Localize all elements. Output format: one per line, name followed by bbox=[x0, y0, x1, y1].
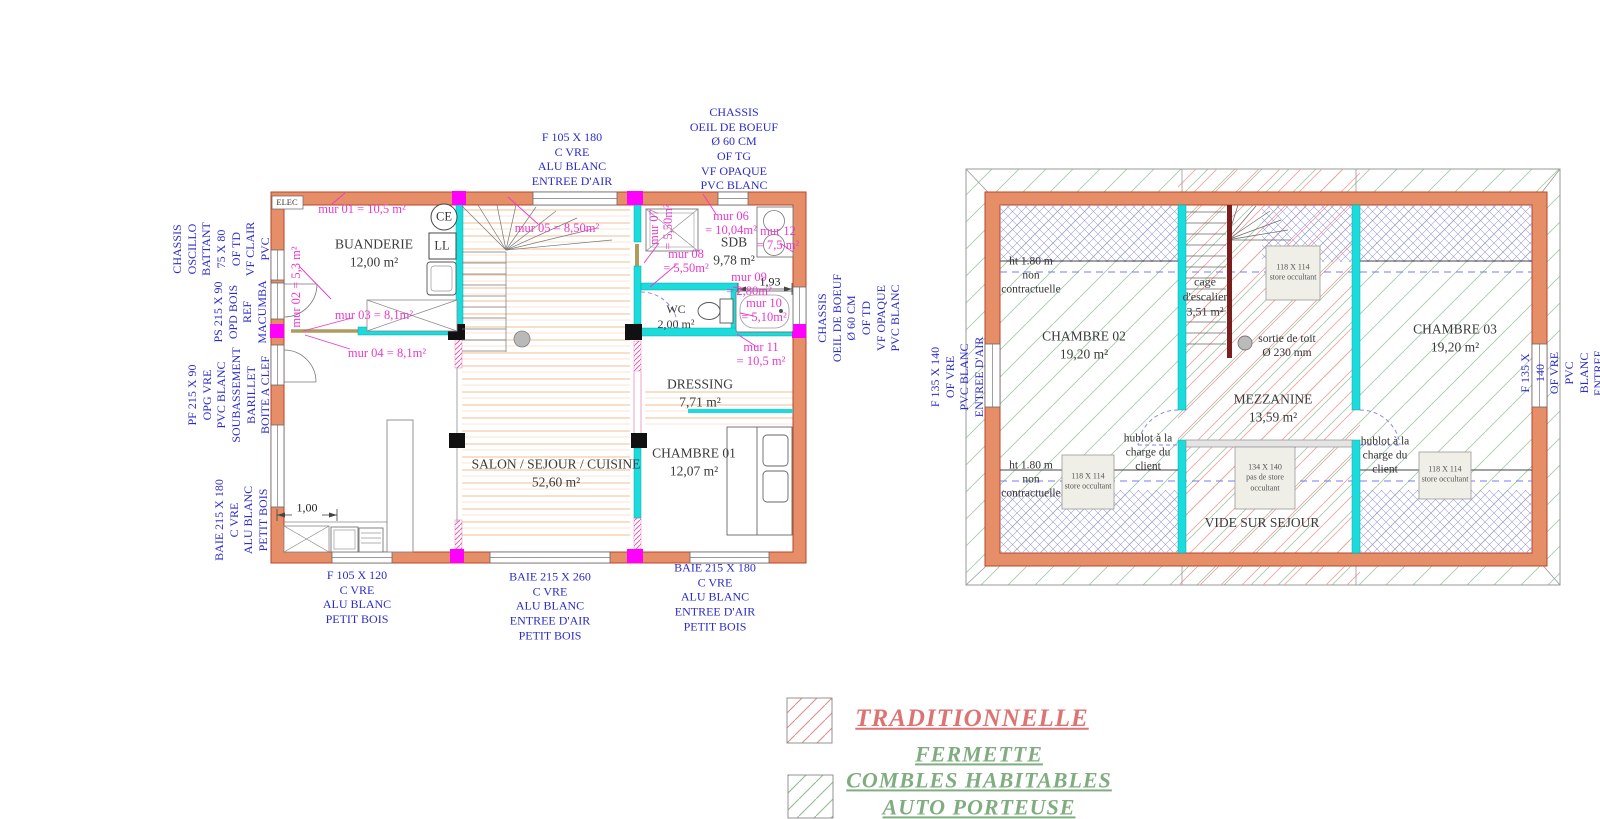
legend-swatches bbox=[787, 698, 833, 818]
bed bbox=[727, 427, 792, 535]
legend-swatch-fermette bbox=[788, 775, 833, 818]
first-floor-plan bbox=[966, 169, 1560, 585]
bathroom-fixtures bbox=[646, 207, 793, 332]
kitchen-fixtures bbox=[284, 420, 413, 552]
legend-swatch-traditionnelle bbox=[787, 698, 832, 743]
floor-plan-drawing bbox=[0, 0, 1600, 819]
ground-floor-plan bbox=[270, 191, 806, 563]
floor-plan-page: ELEC BUANDERIE 12,00 m² SALON / SEJOUR /… bbox=[0, 0, 1600, 819]
